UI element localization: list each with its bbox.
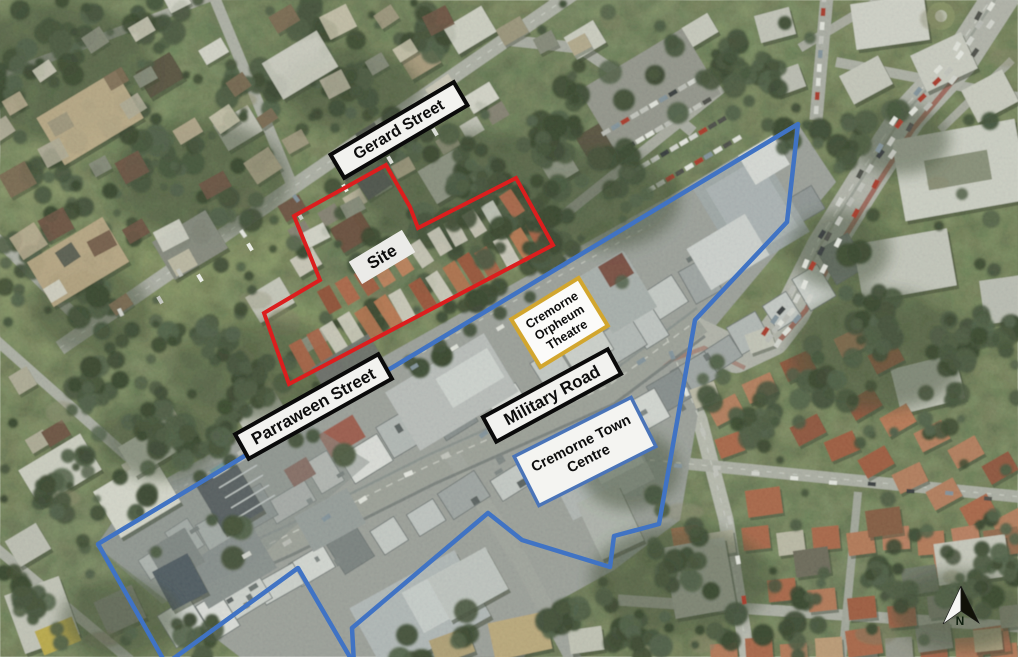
svg-text:N: N [956, 614, 965, 628]
